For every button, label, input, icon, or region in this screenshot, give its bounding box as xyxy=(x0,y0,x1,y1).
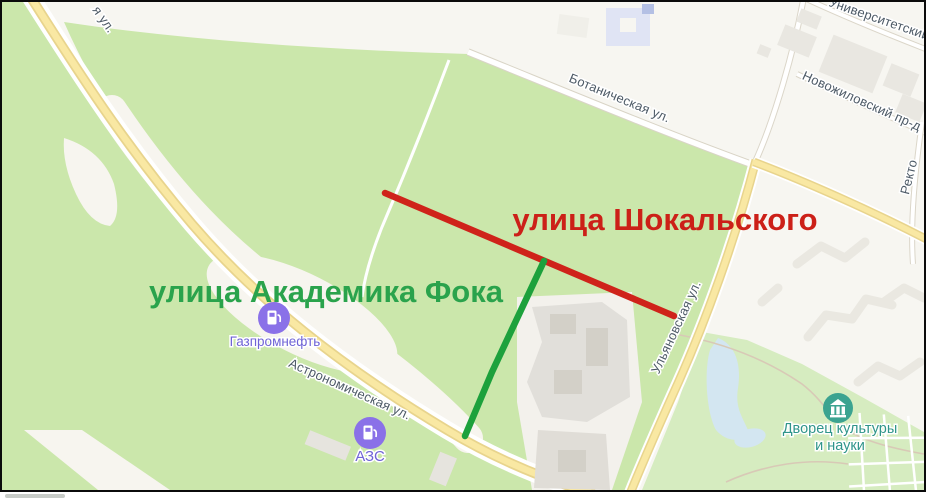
map-canvas[interactable]: я ул. Ботаническая ул. Астрономическая у… xyxy=(2,2,924,490)
bottom-left-artifact xyxy=(5,494,65,498)
poi-label-palace-line1[interactable]: Дворец культуры xyxy=(783,421,898,437)
poi-azs[interactable]: АЗС xyxy=(354,417,386,465)
fuel-pump-icon[interactable] xyxy=(354,417,386,449)
poi-label-palace-line2[interactable]: и науки xyxy=(815,438,865,454)
poi-label-azs[interactable]: АЗС xyxy=(355,448,385,465)
culture-building-icon[interactable] xyxy=(823,393,853,423)
poi-label-gazprom[interactable]: Газпромнефть xyxy=(230,334,321,349)
annotation-label-shokalskogo: улица Шокальского xyxy=(512,202,817,237)
annotation-label-akademika-foka: улица Академика Фока xyxy=(149,274,504,309)
map-frame: я ул. Ботаническая ул. Астрономическая у… xyxy=(0,0,926,492)
